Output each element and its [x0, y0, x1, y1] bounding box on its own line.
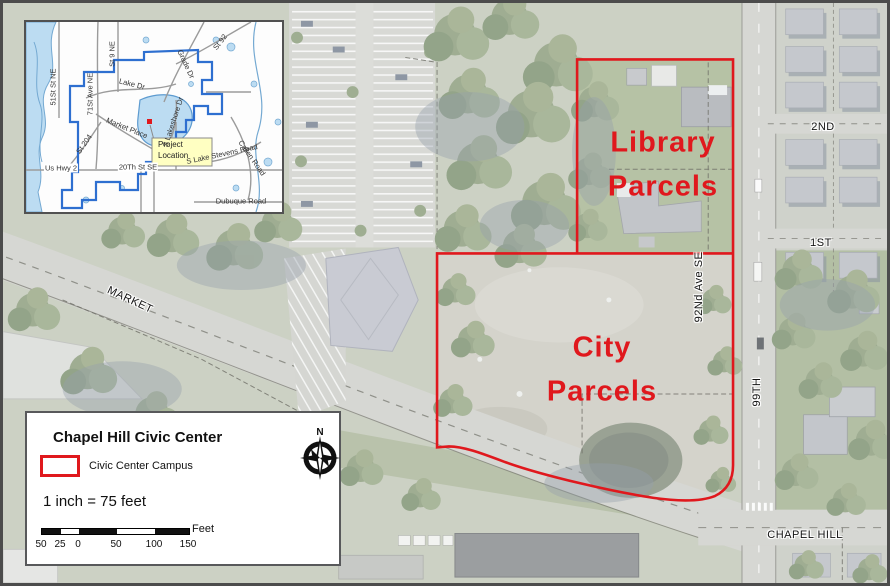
street-label-92nd-ave-se: 92Nd Ave SE [693, 252, 705, 323]
inset-map-art [26, 22, 282, 212]
city-parcels-label: City Parcels [492, 327, 712, 414]
inset-label-51st-st-ne: 51St St NE [49, 68, 58, 105]
legend-swatch-label: Civic Center Campus [89, 460, 193, 472]
legend-box: Chapel Hill Civic Center Civic Center Ca… [25, 411, 341, 566]
map-canvas: MARKET 2ND 1ST 92Nd Ave SE 99TH CHAPEL H… [0, 0, 890, 586]
scale-tick: 50 [35, 539, 46, 550]
street-label-1st: 1ST [810, 237, 832, 249]
callout-line1: Project [158, 140, 188, 151]
street-label-99th: 99TH [751, 378, 763, 407]
inset-label-20th-st-se: 20Th St SE [118, 163, 158, 172]
scale-bar-segment [117, 529, 155, 534]
project-location-callout-text: Project Location [158, 140, 188, 162]
scale-tick: 50 [110, 539, 121, 550]
library-parcels-line2: Parcels [553, 165, 773, 209]
project-location-marker [147, 119, 152, 124]
scale-bar-unit: Feet [192, 523, 214, 535]
scale-tick: 100 [146, 539, 163, 550]
legend-title: Chapel Hill Civic Center [53, 429, 222, 446]
city-parcels-line2: Parcels [492, 370, 712, 414]
legend-entry-civic-center-campus: Civic Center Campus [40, 455, 193, 477]
library-parcels-line1: Library [553, 122, 773, 166]
scale-tick: 25 [54, 539, 65, 550]
north-arrow-icon: N [297, 425, 343, 483]
city-parcels-line1: City [492, 327, 712, 371]
scale-bar-segment [155, 529, 189, 534]
scale-ratio-text: 1 inch = 75 feet [43, 493, 146, 510]
civic-center-campus-swatch [40, 455, 80, 477]
scale-tick: 0 [75, 539, 81, 550]
library-parcels-label: Library Parcels [553, 122, 773, 209]
scale-bar-segment [42, 529, 61, 534]
inset-label-st-9-ne: St 9 NE [108, 41, 117, 67]
inset-locator-map: 51St St NE 71St Ave NE St 9 NE St 92 Lak… [24, 20, 284, 214]
scale-bar-segment [79, 529, 117, 534]
callout-line2: Location [158, 151, 188, 162]
scale-tick: 150 [180, 539, 197, 550]
street-label-2nd: 2ND [811, 121, 835, 133]
inset-label-us-hwy-2: Us Hwy 2 [44, 164, 78, 173]
scale-bar [41, 528, 190, 535]
inset-label-dubuque-road: Dubuque Road [216, 197, 266, 206]
inset-label-71st-ave-ne: 71St Ave NE [86, 73, 95, 115]
scale-bar-segment [61, 529, 79, 534]
street-label-chapel-hill: CHAPEL HILL [767, 529, 842, 541]
